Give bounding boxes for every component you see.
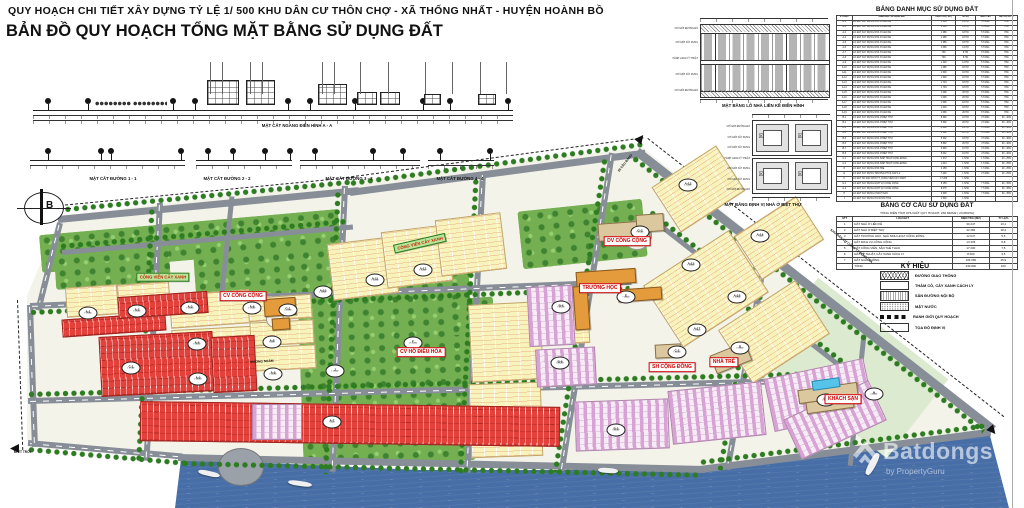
diagram-side-label: HÀNH LANG KỸ THUẬT — [725, 158, 750, 160]
area-badge-size: 1 386M2 — [194, 380, 201, 382]
diagram-side-label: CHỈ GIỚI ĐƯỜNG ĐỎ — [675, 28, 698, 30]
area-badge-size: 1 096M2 — [133, 312, 140, 314]
area-badge: A-7790M2 — [323, 416, 342, 429]
area-badge: A-171 096M2 — [688, 324, 707, 337]
rowhouse-block — [251, 344, 316, 371]
area-badge: C-21 044M2 — [668, 346, 687, 359]
area-badge: A-111 600M2 — [366, 274, 385, 287]
table-row: JLÔ ĐẤT XÂY DỰNG HỒ NƯỚC THẢI1 5001 NHÀ — [837, 197, 1018, 202]
section-caption: MẶT CẮT ĐƯỜNG 3 - 3 — [325, 176, 372, 181]
area-badge-size: 1 096M2 — [248, 309, 255, 311]
structure-table-title: BẢNG CƠ CẤU SỬ DỤNG ĐẤT — [836, 202, 1018, 209]
structure-table-block: BẢNG CƠ CẤU SỬ DỤNG ĐẤT TỔNG DIỆN TÍCH K… — [836, 202, 1018, 270]
section-tree-icon — [45, 98, 51, 104]
legend-label: ĐƯỜNG GIAO THÔNG — [915, 273, 956, 278]
dimension-line — [752, 114, 830, 118]
section-tree-icon — [170, 98, 176, 104]
table-cell — [975, 197, 995, 202]
utility-mark — [250, 62, 251, 94]
area-badge: A-151 096M2 — [682, 259, 701, 272]
area-badge-size: 4 608M2 — [870, 395, 877, 397]
section-baseline — [30, 160, 185, 161]
area-badge-size: 5 892M2 — [556, 364, 563, 366]
utility-mark — [360, 62, 361, 94]
site-label: TRƯỜNG HỌC — [579, 283, 621, 293]
area-badge: G-15 158M2 — [279, 304, 298, 317]
section-tree-icon — [108, 148, 114, 154]
area-badge: A-51 386M2 — [189, 373, 208, 386]
area-badge: B-65 892M2 — [551, 357, 570, 370]
area-badge: A-8790M2 — [263, 336, 282, 349]
compass-icon: B — [24, 192, 64, 224]
area-badge-size: 1 600M2 — [419, 271, 426, 273]
sheet-title: QUY HOẠCH CHI TIẾT XÂY DỰNG TỶ LỆ 1/ 500… — [8, 5, 604, 17]
area-badge: J1 500M2 — [326, 365, 345, 378]
section-building — [478, 94, 496, 105]
area-badge: A-141 704M2 — [751, 230, 770, 243]
utility-mark — [480, 62, 481, 94]
area-badge-size: 5 692M2 — [557, 308, 564, 310]
dimension-line — [196, 165, 292, 169]
utility-mark — [262, 62, 263, 94]
area-badge-size: 7 200M2 — [622, 298, 629, 300]
area-badge: A-161 096M2 — [728, 291, 747, 304]
section-tree-icon — [312, 148, 318, 154]
section-tree-icon — [45, 148, 51, 154]
dimension-line — [30, 165, 185, 169]
villa-block — [252, 404, 302, 440]
section-tree-icon — [285, 98, 291, 104]
area-badge-size: 1 096M2 — [733, 298, 740, 300]
section-baseline — [196, 160, 292, 161]
area-badge: A-91 400M2 — [264, 368, 283, 381]
watermark-byline: by PropertyGuru — [886, 467, 993, 476]
rowhouse-cells — [701, 64, 829, 92]
diagram-side-label: CHỈ GIỚI ĐƯỜNG ĐỎ — [727, 189, 750, 191]
legend-swatch-icon — [880, 302, 909, 311]
diagram-side-label: CHỈ GIỚI XÂY DỰNG — [727, 147, 750, 149]
diagram-side-label: CHỈ GIỚI XÂY DỰNG — [727, 168, 750, 170]
section-caption: MẶT CẮT ĐƯỜNG 1 - 1 — [89, 176, 136, 181]
table-cell: LÔ ĐẤT XÂY DỰNG HỒ NƯỚC THẢI — [852, 197, 932, 202]
area-badge-size: 8 075M2 — [636, 233, 643, 235]
section-tree-icon — [287, 148, 293, 154]
section-caption: MẶT CẮT ĐƯỜNG 2 - 2 — [203, 176, 250, 181]
land-use-table: KÝ HIỆUDANH MỤC SỬ DỤNG ĐẤTDIỆN TÍCH ( M… — [836, 15, 1018, 203]
diagram-side-label: CHỈ GIỚI XÂY DỰNG — [675, 42, 698, 44]
compass-north-letter: B — [46, 200, 53, 211]
diagram-band — [701, 25, 829, 32]
area-badge-size: 5 158M2 — [284, 311, 291, 313]
legend-swatch-icon — [880, 281, 909, 290]
legend-label: THẢM CỎ, CÂY XANH CÁCH LY — [915, 283, 974, 288]
villa-diagram-caption: MẶT BẰNG ĐỊNH VỊ NHÀ Ở BIỆT THỰ — [725, 202, 802, 207]
legend-swatch-icon — [880, 323, 909, 332]
rowhouse-block — [435, 212, 507, 277]
area-badge: A-131 704M2 — [679, 179, 698, 192]
road-label: ĐI TT TRỚI — [14, 450, 31, 454]
dimension-line — [428, 165, 494, 169]
section-tree-icon — [505, 98, 511, 104]
legend-label: MẶT NƯỚC — [915, 304, 937, 309]
area-badge: A-61 096M2 — [243, 302, 262, 315]
legend-item: TỌA ĐỘ ĐỊNH VỊ — [880, 322, 1016, 332]
area-badge: A-21 096M2 — [128, 305, 147, 318]
legend-items: ĐƯỜNG GIAO THÔNGTHẢM CỎ, CÂY XANH CÁCH L… — [880, 270, 1016, 332]
area-badge-size: 1 400M2 — [269, 375, 276, 377]
section-tree-icon — [178, 148, 184, 154]
section-building — [380, 92, 400, 105]
area-badge-size: 790M2 — [329, 423, 335, 425]
utility-mark — [388, 62, 389, 94]
section-tree-icon — [437, 148, 443, 154]
area-badge: A-31 386M2 — [181, 302, 200, 315]
area-badge: A-121 600M2 — [414, 264, 433, 277]
area-badge-size: 5 302M2 — [612, 431, 619, 433]
legend-swatch-icon — [880, 291, 909, 300]
area-badge-size: 790M2 — [269, 343, 275, 345]
diagram-side-label: CHỈ GIỚI XÂY DỰNG — [727, 179, 750, 181]
site-label: DV CÔNG CỘNG — [604, 236, 651, 246]
shophouse-block — [211, 335, 258, 393]
land-use-table-title: BẢNG DANH MỤC SỬ DỤNG ĐẤT — [836, 6, 1018, 13]
land-use-table-block: BẢNG DANH MỤC SỬ DỤNG ĐẤT KÝ HIỆUDANH MỤ… — [836, 6, 1018, 202]
area-badge-size: 1 386M2 — [193, 345, 200, 347]
villa-footprint — [795, 162, 828, 190]
utility-mark — [452, 62, 453, 94]
section-shrubs — [133, 101, 167, 106]
legend-item: RANH GIỚI QUY HOẠCH — [880, 312, 1016, 322]
utility-mark — [222, 62, 223, 94]
area-badge: A-101 386M2 — [314, 286, 333, 299]
section-tree-icon — [400, 148, 406, 154]
legend-title: KÝ HIỆU — [880, 263, 950, 270]
section-tree-icon — [85, 98, 91, 104]
area-badge: C-11 372M2 — [122, 362, 141, 375]
compass-needle-icon — [40, 189, 43, 225]
area-badge: B-45 692M2 — [552, 301, 571, 314]
dimension-line — [300, 165, 420, 169]
diagram-side-label: CHỈ GIỚI ĐƯỜNG ĐỎ — [675, 90, 698, 92]
dimension-line — [33, 115, 513, 119]
table-cell: 1 NHÀ — [956, 197, 976, 202]
site-label: CÔNG VIÊN CÂY XANH — [136, 273, 189, 282]
utility-mark — [506, 62, 507, 94]
plan-boundary-dashed — [17, 300, 23, 450]
section-shrubs — [95, 101, 131, 106]
utility-mark — [334, 62, 335, 94]
villa-footprint — [756, 162, 789, 190]
villa-unit — [752, 158, 832, 194]
diagram-side-label: CHỈ GIỚI XÂY DỰNG — [727, 137, 750, 139]
diagram-side-label: CHỈ GIỚI ĐƯỜNG ĐỎ — [727, 126, 750, 128]
diagram-band — [701, 90, 829, 97]
rowhouse-lot-diagram — [700, 24, 830, 98]
batdongsan-logo-icon — [852, 439, 878, 465]
area-badge-size: 1 372M2 — [127, 369, 134, 371]
villa-block — [526, 285, 575, 347]
legend-item: ĐƯỜNG GIAO THÔNG — [880, 270, 1016, 280]
table-cell: 1 500 — [932, 197, 956, 202]
planning-map-sheet: B Batdongs by PropertyGuru A-11 096M2A-2… — [0, 0, 1024, 508]
legend-swatch-icon — [880, 271, 909, 280]
legend-item: MẶT NƯỚC — [880, 301, 1016, 311]
site-label: CV HỒ ĐIỀU HÒA — [397, 347, 446, 357]
area-badge: A-11 096M2 — [79, 307, 98, 320]
rowhouse-cells — [701, 33, 829, 61]
section-building — [207, 80, 239, 105]
villa-lot-diagram — [752, 120, 830, 194]
section-caption: MẶT CẮT NGANG ĐIỂN HÌNH A - A — [262, 123, 332, 128]
table-cell: J — [837, 197, 853, 202]
legend: KÝ HIỆU ĐƯỜNG GIAO THÔNGTHẢM CỎ, CÂY XAN… — [880, 263, 1016, 332]
table-cell — [995, 197, 1017, 202]
section-tree-icon — [98, 148, 104, 154]
section-tree-icon — [447, 98, 453, 104]
section-baseline — [300, 160, 420, 161]
shophouse-block — [140, 401, 561, 447]
villa-block — [667, 381, 766, 445]
section-tree-icon — [487, 148, 493, 154]
dimension-line — [752, 197, 830, 201]
section-tree-icon — [262, 148, 268, 154]
right-rule — [1012, 0, 1013, 508]
area-badge-size: 2 158M2 — [736, 349, 743, 351]
site-label: KHÁCH SẠN — [825, 394, 862, 404]
legend-swatch-icon — [880, 315, 907, 319]
section-baseline — [428, 160, 494, 161]
area-badge: B-55 302M2 — [607, 424, 626, 437]
legend-label: SÂN ĐƯỜNG NỘI BỘ — [915, 293, 954, 298]
section-tree-icon — [370, 148, 376, 154]
area-badge: D2 158M2 — [731, 342, 750, 355]
utility-mark — [425, 62, 426, 94]
table-cell — [837, 263, 853, 269]
area-badge-size: 1 704M2 — [684, 186, 691, 188]
site-label: CV CÔNG CỘNG — [220, 291, 267, 301]
map-title: BẢN ĐỒ QUY HOẠCH TỔNG MẶT BẰNG SỬ DỤNG Đ… — [6, 22, 443, 41]
section-baseline — [33, 110, 513, 111]
section-building — [424, 94, 441, 105]
diagram-side-label: CHỈ GIỚI XÂY DỰNG — [675, 74, 698, 76]
utility-mark — [322, 62, 323, 94]
dimension-line — [700, 18, 828, 22]
diagram-side-label: HÀNH LANG KỸ THUẬT — [673, 58, 698, 60]
section-tree-icon — [205, 148, 211, 154]
area-badge-size: 1 500M2 — [331, 372, 338, 374]
area-badge-size: 1 386M2 — [186, 309, 193, 311]
area-badge: A-41 386M2 — [188, 338, 207, 351]
area-badge-size: 1 704M2 — [756, 237, 763, 239]
structure-table-subtitle: TỔNG DIỆN TÍCH KHU ĐẤT QUY HOẠCH: 230 84… — [836, 211, 1018, 215]
section-tree-icon — [230, 148, 236, 154]
legend-label: TỌA ĐỘ ĐỊNH VỊ — [915, 325, 945, 330]
section-tree-icon — [307, 98, 313, 104]
legend-item: THẢM CỎ, CÂY XANH CÁCH LY — [880, 280, 1016, 290]
area-badge-size: 1 096M2 — [693, 331, 700, 333]
area-badge-size: 1 096M2 — [687, 266, 694, 268]
watermark-brand: Batdongs — [883, 438, 993, 465]
villa-unit — [752, 120, 832, 156]
villa-footprint — [795, 124, 828, 152]
villa-footprint — [756, 124, 789, 152]
structure-table: STTLOẠI ĐẤTDIỆN TÍCH (M2)TỶ LỆ%1ĐẤT NHÀ … — [836, 216, 1018, 270]
site-label: NHÀ TRẺ — [709, 357, 738, 367]
legend-label: RANH GIỚI QUY HOẠCH — [913, 314, 959, 319]
area-badge-size: 1 386M2 — [319, 293, 326, 295]
site-label: SH CỘNG ĐỒNG — [649, 362, 696, 372]
area-badge-size: 1 600M2 — [371, 281, 378, 283]
section-caption: MẶT CẮT ĐƯỜNG 4 - 4 — [436, 176, 483, 181]
area-badge-size: 1 096M2 — [84, 314, 91, 316]
area-badge-size: 17 200M2 — [409, 344, 417, 346]
school-building — [272, 317, 291, 330]
area-badge: H4 608M2 — [865, 388, 884, 401]
watermark: Batdongs by PropertyGuru — [852, 438, 993, 476]
rowhouse-diagram-caption: MẶT BẰNG LÔ NHÀ LIỀN KỀ ĐIỂN HÌNH — [722, 103, 804, 108]
area-badge-size: 1 044M2 — [673, 353, 680, 355]
legend-item: SÂN ĐƯỜNG NỘI BỘ — [880, 291, 1016, 301]
utility-mark — [210, 62, 211, 94]
section-tree-icon — [192, 98, 198, 104]
